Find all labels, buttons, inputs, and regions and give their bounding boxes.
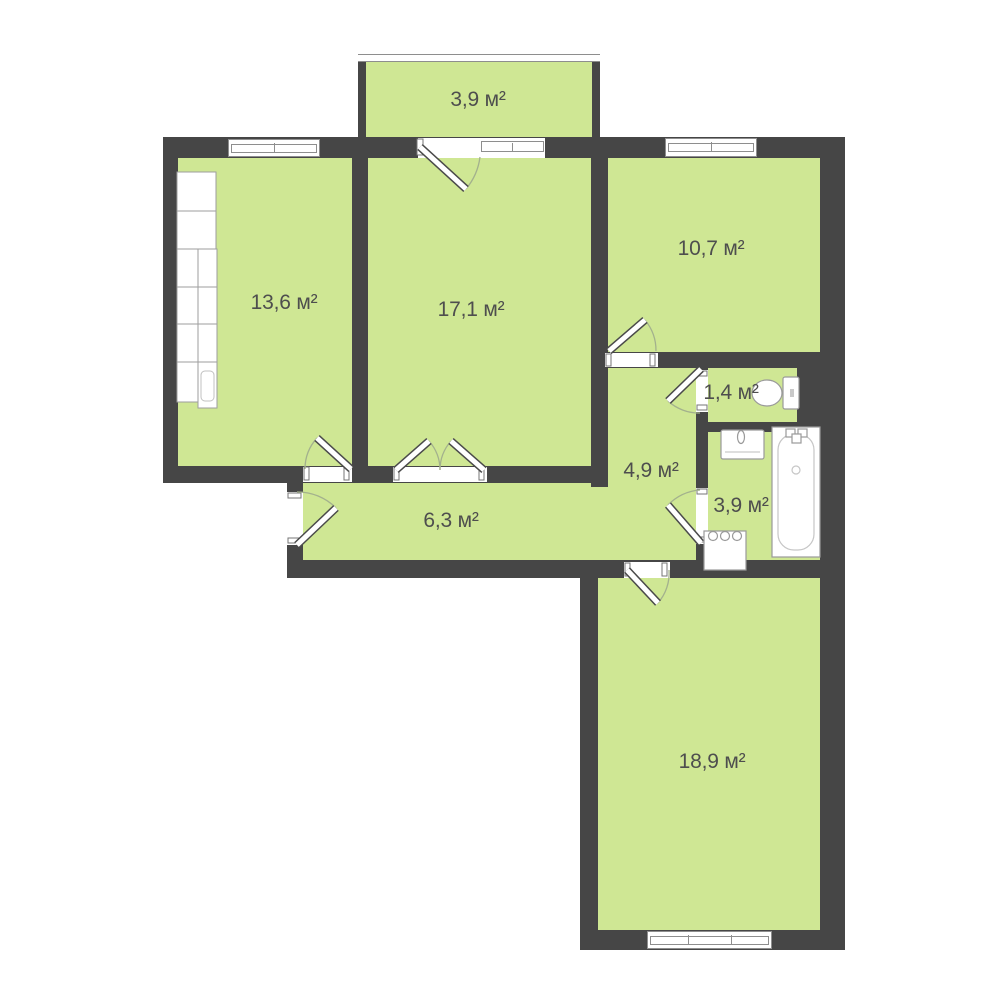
- opening-bath-door: [696, 488, 708, 544]
- window-divider: [711, 142, 712, 151]
- balcony-railing: [358, 54, 600, 62]
- window-divider: [731, 935, 732, 944]
- room-label-balcony: 3,9 м²: [450, 88, 505, 112]
- window-divider: [688, 935, 689, 944]
- wall-left: [163, 137, 178, 483]
- opening-entrance-door: [287, 492, 303, 545]
- room-label-room10: 10,7 м²: [678, 237, 745, 261]
- opening-living-door: [624, 562, 670, 578]
- opening-kitchen-door: [303, 467, 352, 482]
- room-corridor-hall-passage: [591, 487, 608, 560]
- wall-kitchen-room17: [352, 158, 368, 466]
- window-divider: [274, 143, 275, 152]
- window-room10: [665, 138, 757, 157]
- wall-balcony-left: [358, 54, 366, 138]
- room-label-room17: 17,1 м²: [438, 298, 505, 322]
- window-living: [647, 931, 772, 949]
- wall-wc-bottom: [696, 422, 820, 432]
- floor-plan: 3,9 м² 13,6 м² 17,1 м² 10,7 м² 1,4 м² 4,…: [0, 0, 1000, 1000]
- window-glass: [650, 936, 769, 945]
- room-label-living: 18,9 м²: [679, 750, 746, 774]
- room-label-bathroom: 3,9 м²: [713, 494, 768, 518]
- wall-living-left: [580, 560, 598, 950]
- opening-room10-door: [605, 353, 658, 367]
- window-divider: [512, 143, 513, 151]
- room-label-wc: 1,4 м²: [703, 381, 758, 405]
- room-label-hallway: 4,9 м²: [623, 459, 678, 483]
- window-balcony: [481, 141, 544, 152]
- wall-right: [820, 137, 845, 950]
- wall-room17-hall: [591, 158, 608, 487]
- wall-balcony-right: [592, 54, 600, 138]
- room-label-kitchen: 13,6 м²: [251, 291, 318, 315]
- room-label-corridor: 6,3 м²: [423, 509, 478, 533]
- window-kitchen: [228, 139, 320, 157]
- wall-kitchen-bottom: [163, 466, 303, 483]
- wall-bottom-band: [287, 560, 845, 578]
- opening-double-door: [393, 467, 487, 482]
